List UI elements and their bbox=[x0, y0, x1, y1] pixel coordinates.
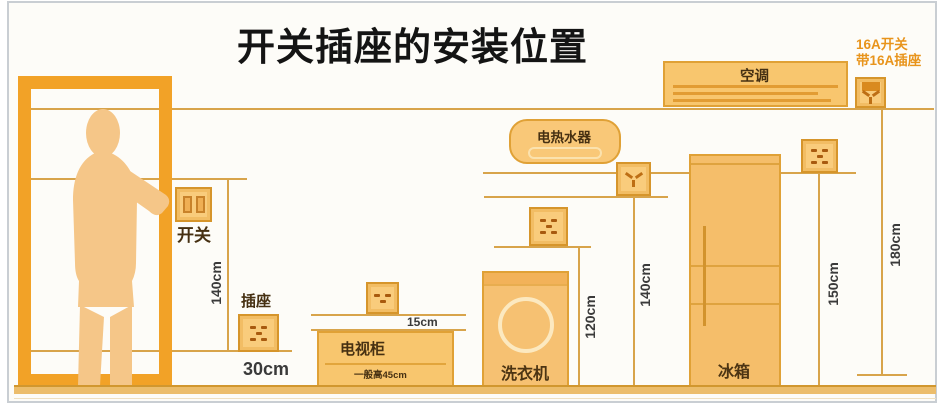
ac-socket-icon bbox=[855, 77, 886, 108]
diagram-canvas: 开关插座的安装位置 开关 140cm 插座 30cm bbox=[0, 0, 946, 420]
wall-socket-label: 插座 bbox=[241, 290, 271, 311]
wall-socket-icon bbox=[238, 314, 279, 352]
heater-socket-icon bbox=[616, 162, 651, 196]
ac-vent-line-3 bbox=[673, 99, 831, 102]
tv-cabinet-note: 一般高45cm bbox=[354, 367, 407, 381]
measure-line-fridge-150 bbox=[818, 172, 820, 385]
washer-top-band bbox=[484, 273, 567, 286]
washer-socket-shelf-line bbox=[494, 246, 591, 248]
floor-shadow-line bbox=[14, 398, 936, 399]
heater-socket-prongs bbox=[624, 171, 644, 188]
tv-socket-gap-label: 15cm bbox=[407, 315, 438, 329]
water-heater-pipe-pill bbox=[528, 147, 602, 159]
tv-socket-shelf-line bbox=[311, 314, 466, 316]
water-heater-label: 电热水器 bbox=[537, 126, 591, 146]
heater-socket-height-label: 140cm bbox=[635, 253, 655, 317]
switch-label: 开关 bbox=[177, 221, 211, 246]
person-silhouette bbox=[65, 105, 177, 390]
refrigerator bbox=[689, 154, 781, 387]
ac-socket-note-line2: 带16A插座 bbox=[856, 53, 921, 69]
ac-socket-switch-plate bbox=[862, 82, 880, 91]
ac-socket-height-label: 180cm bbox=[885, 213, 905, 277]
fridge-socket-height-label: 150cm bbox=[823, 252, 843, 316]
heater-socket-lower-line bbox=[484, 196, 668, 198]
washer-socket-icon bbox=[529, 207, 568, 246]
switch-height-label: 140cm bbox=[206, 251, 226, 315]
washer-label: 洗衣机 bbox=[501, 360, 549, 384]
ac-socket-note-line1: 16A开关 bbox=[856, 37, 921, 53]
tv-cabinet-divider bbox=[325, 363, 446, 365]
fridge-handle bbox=[703, 226, 706, 326]
washer-socket-height-label: 120cm bbox=[580, 285, 600, 349]
floor bbox=[14, 385, 936, 394]
tv-cabinet-label: 电视柜 bbox=[340, 338, 385, 359]
ac-socket-note: 16A开关 带16A插座 bbox=[856, 37, 921, 69]
socket-height-label: 30cm bbox=[243, 359, 289, 380]
fridge-socket-icon bbox=[801, 139, 838, 173]
fridge-label: 冰箱 bbox=[718, 358, 750, 382]
ac-socket-prongs bbox=[861, 92, 881, 104]
washer-door-circle bbox=[498, 297, 554, 353]
page-title: 开关插座的安装位置 bbox=[237, 16, 588, 71]
measure-line-switch-140 bbox=[227, 178, 229, 350]
ac-vent-line-2 bbox=[673, 92, 818, 95]
switch-rockers bbox=[183, 196, 205, 213]
fridge-top-line bbox=[691, 163, 779, 165]
tv-socket-icon bbox=[366, 282, 399, 314]
ac-label: 空调 bbox=[740, 65, 769, 86]
ac-measure-end-cap bbox=[857, 374, 907, 376]
measure-line-ac-180 bbox=[881, 108, 883, 374]
light-switch-icon bbox=[175, 187, 212, 222]
